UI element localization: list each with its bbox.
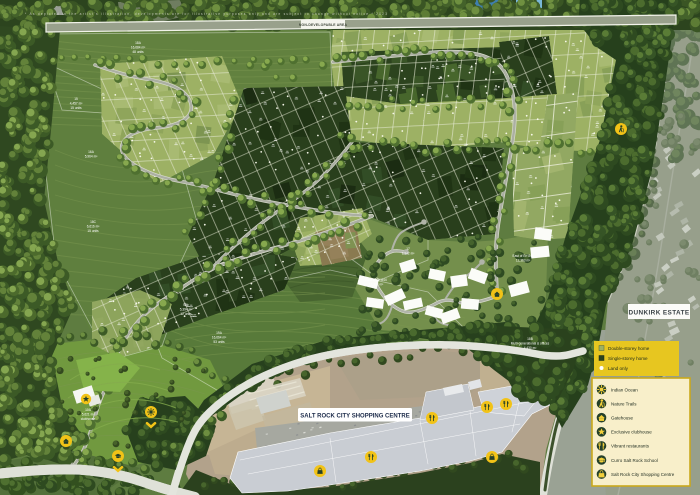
svg-text:5,394 m²: 5,394 m²	[180, 308, 193, 312]
svg-text:12,363 m²: 12,363 m²	[516, 259, 530, 263]
svg-text:Curro Salt Rock School: Curro Salt Rock School	[611, 458, 658, 463]
svg-text:18B: 18B	[527, 337, 533, 341]
svg-text:16A: 16A	[88, 150, 95, 154]
svg-text:clubhouse: clubhouse	[81, 417, 96, 421]
svg-text:5,621 m²: 5,621 m²	[82, 413, 95, 417]
svg-text:15 units: 15 units	[70, 106, 82, 110]
svg-text:Single-storey home: Single-storey home	[608, 356, 648, 361]
svg-text:18A: 18A	[135, 41, 142, 45]
svg-text:18C: 18C	[90, 220, 97, 224]
svg-text:Gatehouse: Gatehouse	[611, 416, 634, 421]
svg-text:Rest of Erf 844: Rest of Erf 844	[365, 278, 386, 282]
svg-text:12,363 m²: 12,363 m²	[369, 283, 383, 287]
svg-text:Land only: Land only	[608, 366, 629, 371]
svg-text:16,664 m²: 16,664 m²	[212, 336, 226, 340]
svg-text:4,457 m²: 4,457 m²	[70, 102, 83, 106]
svg-text:48 units: 48 units	[132, 50, 144, 54]
svg-text:Nature Trails: Nature Trails	[611, 401, 637, 406]
svg-text:NON-DEVELOPABLE AREA: NON-DEVELOPABLE AREA	[299, 23, 348, 27]
svg-text:53 units: 53 units	[213, 340, 225, 344]
svg-text:6,616 m²: 6,616 m²	[87, 225, 100, 229]
svg-text:Exclusive clubhouse: Exclusive clubhouse	[611, 430, 652, 435]
svg-text:SALT ROCK CITY SHOPPING CENTRE: SALT ROCK CITY SHOPPING CENTRE	[300, 414, 409, 420]
svg-text:Salt Rock City Shopping Centre: Salt Rock City Shopping Centre	[611, 472, 675, 477]
svg-text:15 units: 15 units	[87, 229, 99, 233]
svg-text:17: 17	[406, 247, 410, 251]
svg-text:5,964 m²: 5,964 m²	[85, 155, 98, 159]
svg-text:Indian Ocean: Indian Ocean	[611, 387, 638, 392]
svg-text:4,430 m²: 4,430 m²	[524, 346, 537, 350]
svg-text:Vibrant restaurants: Vibrant restaurants	[611, 444, 650, 449]
svg-text:East of Erf 844: East of Erf 844	[512, 254, 533, 258]
svg-text:10A: 10A	[85, 408, 92, 412]
svg-text:DUNKIRK ESTATE: DUNKIRK ESTATE	[628, 310, 689, 317]
svg-text:8,942 m²: 8,942 m²	[402, 252, 415, 256]
svg-text:16,684 m²: 16,684 m²	[131, 46, 145, 50]
svg-text:15: 15	[74, 97, 78, 101]
svg-text:* As depicted in the artist's: * As depicted in the artist's illustrati…	[25, 12, 387, 16]
svg-text:Multi-generational & offices: Multi-generational & offices	[511, 342, 550, 346]
svg-text:16: 16	[184, 303, 188, 307]
svg-text:Double-storey home: Double-storey home	[608, 346, 650, 351]
svg-text:19A: 19A	[216, 331, 223, 335]
svg-text:12 units: 12 units	[180, 312, 192, 316]
